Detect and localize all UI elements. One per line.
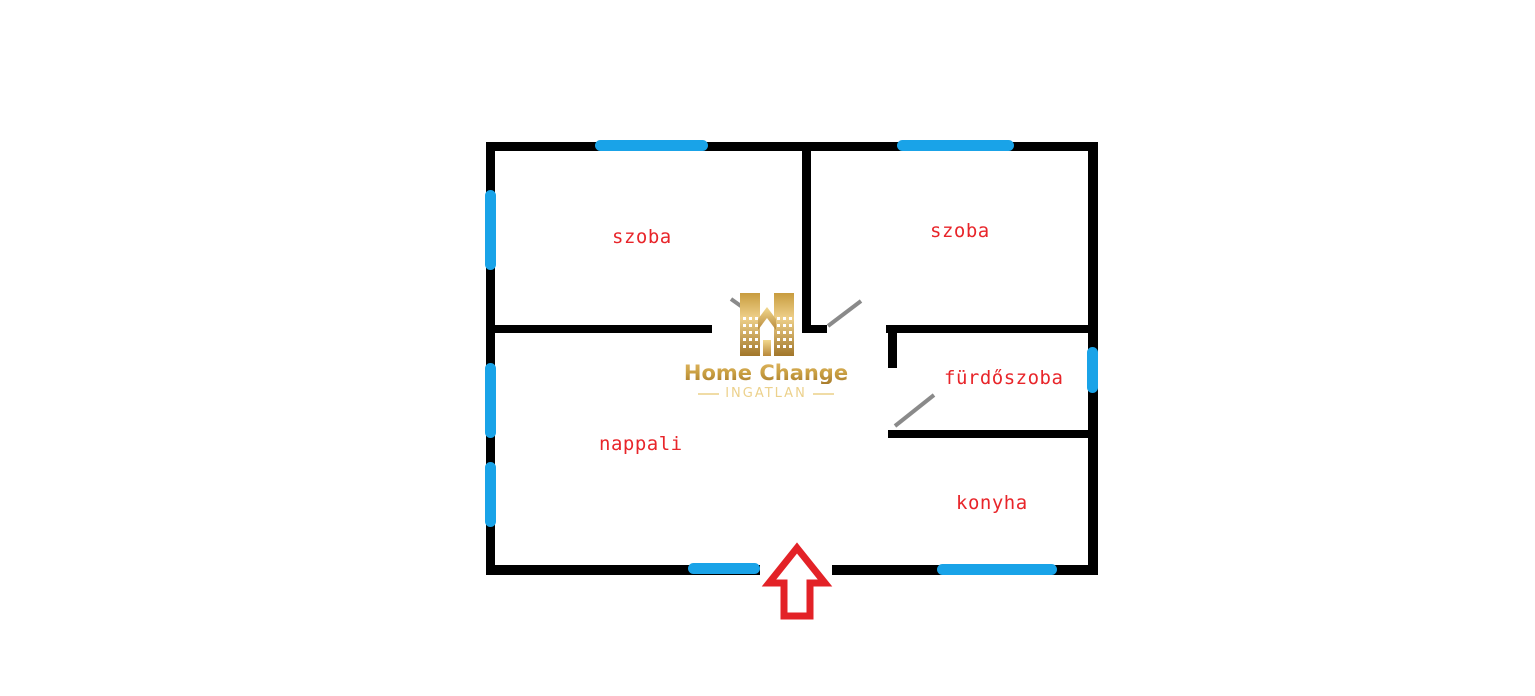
window-marker-left-middle xyxy=(485,363,496,438)
door-swing-furdoszoba-icon xyxy=(895,395,934,426)
logo-subtitle-row: INGATLAN xyxy=(698,387,834,401)
door-swing-szoba-2-icon xyxy=(828,301,861,326)
logo-subtitle: INGATLAN xyxy=(725,387,807,401)
home-change-logo-icon xyxy=(731,292,803,358)
window-marker-bottom-right xyxy=(937,564,1057,575)
wall-mid-left xyxy=(486,325,712,333)
wall-mid-right xyxy=(886,325,1098,333)
logo-subtitle-left-dash xyxy=(698,393,719,395)
floor-plan-canvas: Home Change INGATLAN szoba szoba fürdősz… xyxy=(0,0,1535,696)
wall-mid-center xyxy=(802,325,827,333)
window-marker-left-upper xyxy=(485,190,496,270)
room-label-konyha: konyha xyxy=(956,494,1028,513)
room-label-szoba-1: szoba xyxy=(612,228,672,247)
logo-subtitle-right-dash xyxy=(813,393,834,395)
logo-title: Home Change xyxy=(682,363,850,384)
room-label-furdoszoba: fürdőszoba xyxy=(944,369,1063,388)
window-marker-top-left xyxy=(595,140,708,151)
wall-bathroom-bottom xyxy=(888,430,1098,438)
window-marker-right xyxy=(1087,347,1098,393)
window-marker-top-right xyxy=(897,140,1014,151)
window-marker-left-lower xyxy=(485,462,496,527)
entrance-arrow-icon xyxy=(769,548,825,616)
wall-divider-szoba xyxy=(802,151,811,333)
room-label-nappali: nappali xyxy=(599,435,683,454)
room-label-szoba-2: szoba xyxy=(930,222,990,241)
window-marker-bottom-left xyxy=(688,563,760,574)
wall-bathroom-left xyxy=(888,333,897,368)
